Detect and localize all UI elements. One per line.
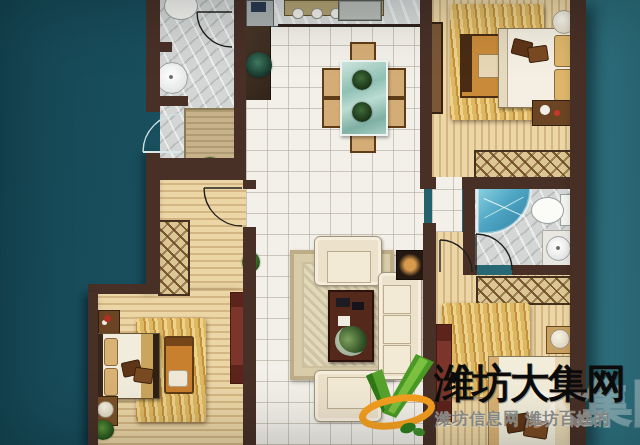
weifang-daji-logo [356, 352, 438, 444]
bedroom2-door-arc [440, 240, 472, 272]
master-door-arc [204, 188, 242, 226]
bathroom2-door-arc [476, 234, 512, 270]
bathroom1-door-arc [197, 12, 232, 47]
floorplan-photo: 大集网 潍坊大集网 潍坊信息网 潍坊百姓的 [0, 0, 640, 445]
watermark-subtitle: 潍坊信息网 潍坊百姓的 [435, 409, 610, 430]
watermark-title: 潍坊大集网 [434, 363, 624, 403]
logo-v-right-face [388, 357, 428, 414]
entry-door-arc [143, 114, 181, 152]
